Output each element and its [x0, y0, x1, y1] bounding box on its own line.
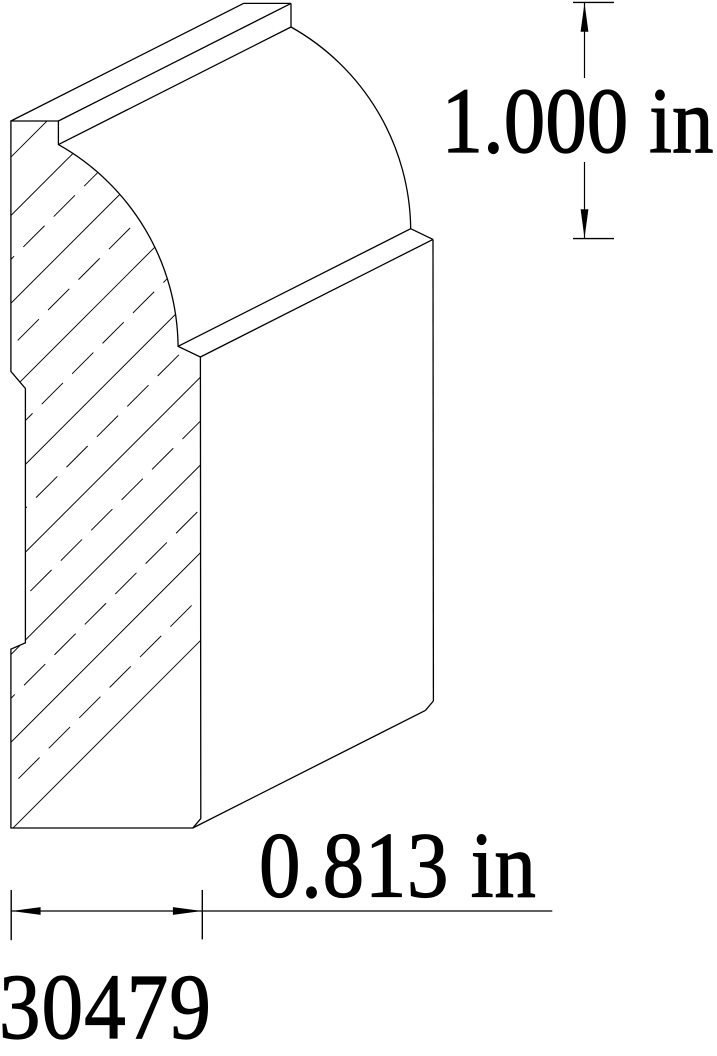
- svg-text:0.813 in: 0.813 in: [259, 814, 537, 917]
- svg-text:1.000 in: 1.000 in: [442, 70, 714, 173]
- svg-text:30479: 30479: [0, 956, 212, 1056]
